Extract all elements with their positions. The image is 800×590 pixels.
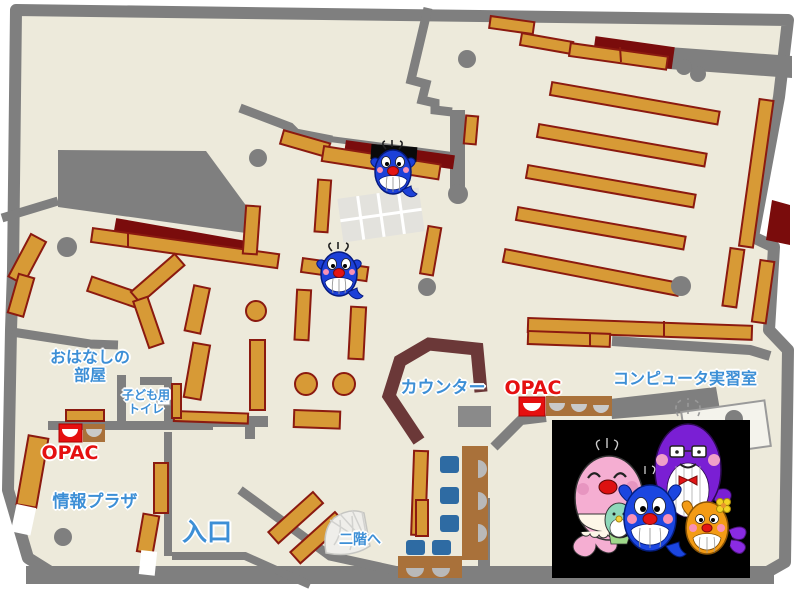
label-kids-toilet: 子ども用トイレ	[122, 389, 170, 417]
mascot-family-photo	[552, 420, 750, 578]
counter-desk	[458, 406, 491, 427]
flower-icon	[717, 499, 731, 513]
label-storytelling-room: おはなしの部屋	[50, 349, 130, 386]
label-counter: カウンター	[401, 379, 486, 399]
label-opac-left: OPAC	[42, 443, 99, 465]
library-floor-map: おはなしの部屋 子ども用トイレ OPAC 情報プラザ 入口 カウンター OPAC…	[0, 0, 800, 590]
label-entrance: 入口	[182, 519, 232, 548]
label-computer-room: コンピュータ実習室	[613, 370, 757, 388]
label-info-plaza: 情報プラザ	[53, 493, 138, 513]
opac-station-left	[59, 424, 105, 442]
label-opac-right: OPAC	[505, 378, 562, 400]
label-to-second-floor: 二階へ	[339, 532, 381, 548]
